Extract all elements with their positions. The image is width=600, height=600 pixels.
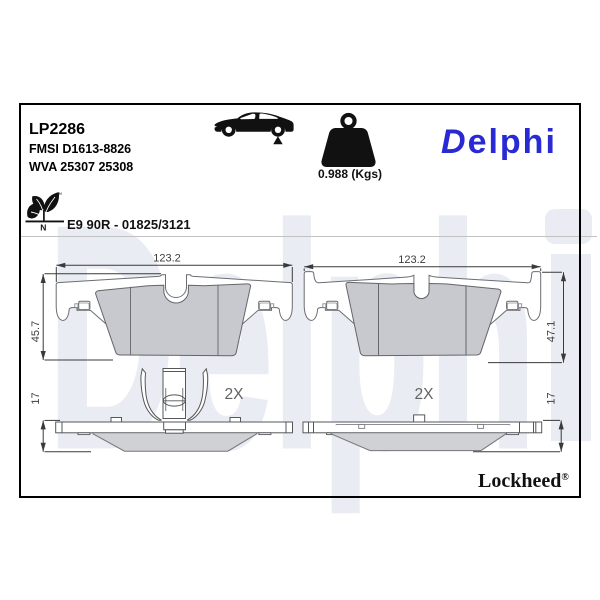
svg-text:123.2: 123.2 bbox=[398, 254, 426, 266]
svg-text:123.2: 123.2 bbox=[153, 253, 181, 265]
svg-text:47.1: 47.1 bbox=[546, 321, 558, 342]
svg-text:2X: 2X bbox=[415, 386, 435, 403]
svg-text:2X: 2X bbox=[225, 386, 245, 403]
svg-text:17: 17 bbox=[30, 392, 42, 404]
svg-text:17: 17 bbox=[546, 392, 558, 404]
svg-text:45.7: 45.7 bbox=[30, 321, 42, 342]
